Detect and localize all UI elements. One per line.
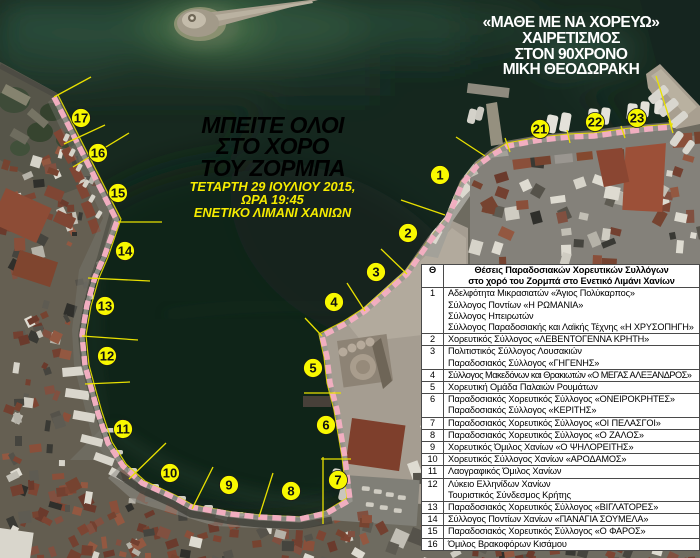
svg-text:13: 13 [98,299,112,314]
svg-text:8: 8 [287,484,294,499]
svg-text:9: 9 [225,478,232,493]
svg-text:7: 7 [334,473,341,488]
svg-text:16: 16 [91,146,105,161]
svg-text:10: 10 [163,466,177,481]
svg-text:3: 3 [372,265,379,280]
svg-text:11: 11 [116,422,130,437]
svg-text:2: 2 [404,226,411,241]
svg-text:23: 23 [630,111,644,126]
svg-text:6: 6 [322,418,329,433]
svg-text:15: 15 [111,186,125,201]
svg-text:21: 21 [533,122,547,137]
svg-text:12: 12 [100,349,114,364]
svg-text:4: 4 [330,295,338,310]
svg-text:22: 22 [588,115,602,130]
svg-text:1: 1 [436,168,443,183]
svg-text:14: 14 [118,244,133,259]
svg-text:5: 5 [309,361,316,376]
svg-text:17: 17 [74,111,88,126]
